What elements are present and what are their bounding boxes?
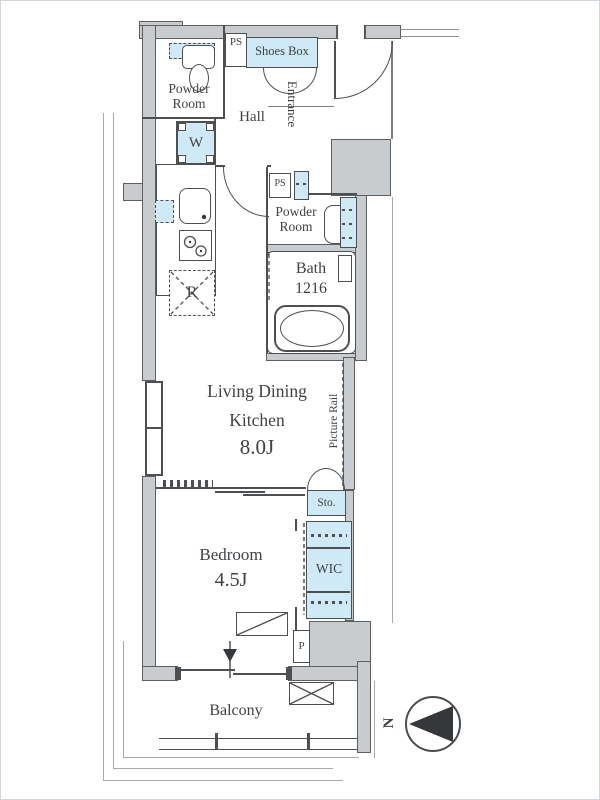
balcony-railing	[159, 738, 357, 750]
powder-room-top-label: Powder Room	[153, 81, 225, 111]
linen-cabinet-dashes	[342, 223, 355, 225]
wall-balcony-right	[357, 661, 371, 753]
wic-label: WIC	[306, 561, 352, 576]
compass-circle	[405, 696, 461, 752]
wall-left-lower	[142, 476, 156, 668]
ldk-window-tick	[145, 427, 163, 429]
entrance-door-opening	[337, 25, 365, 39]
partition-wall	[156, 487, 306, 489]
entrance-step-line	[268, 106, 334, 107]
wic-hanger-dashes	[311, 534, 347, 537]
wic-divider	[307, 591, 350, 593]
kitchen-counter-blue	[155, 200, 174, 223]
storage-label: Sto.	[307, 490, 346, 516]
wall-powder2-top	[307, 193, 357, 195]
outline-bottom-3	[123, 757, 359, 758]
ps-mid-label: PS	[269, 178, 291, 189]
ac-unit-space	[289, 682, 334, 705]
railing-post	[307, 733, 310, 750]
wall-entrance-pillar	[331, 139, 391, 196]
partition-sliding-door-b	[243, 494, 305, 496]
wall-powder1-bottom	[142, 117, 225, 119]
balcony-label: Balcony	[191, 702, 281, 720]
wall-left-upper	[142, 25, 156, 381]
picture-rail-label: Picture Rail	[328, 381, 342, 461]
floor-plan: Powder Room PS Shoes Box Hall Entrance W…	[0, 0, 600, 800]
partition-sliding-door-a	[215, 491, 265, 493]
balcony-sliding-window-b	[233, 673, 288, 675]
outline-left-3	[123, 641, 124, 758]
outline-balcony-right	[374, 681, 375, 758]
stove-icon	[179, 230, 212, 261]
linen-cabinet-dashes	[342, 237, 355, 239]
bath-label: Bath 1216	[271, 259, 351, 299]
outline-right	[392, 197, 393, 623]
counter-desk	[236, 612, 288, 636]
bedroom-label: Bedroom 4.5J	[171, 545, 291, 591]
entrance-door-swing-arc	[335, 41, 393, 99]
ps-top-label: PS	[225, 36, 247, 48]
water-heater-detail	[296, 183, 307, 185]
fridge-label: R	[169, 270, 215, 316]
shoes-box-label: Shoes Box	[246, 44, 318, 58]
bedroom-right-wall-stub-top	[295, 519, 297, 531]
outline-left-1	[103, 113, 104, 781]
compass-north-label: N	[381, 713, 397, 733]
storage-door-left	[307, 468, 326, 490]
hall-label: Hall	[227, 109, 277, 126]
water-heater-icon	[294, 171, 309, 200]
washer-label: W	[176, 121, 216, 165]
bathtub-inner-icon	[280, 310, 344, 347]
wic-divider	[307, 547, 350, 549]
entrance-label: Entrance	[283, 74, 299, 134]
kitchen-sink-icon	[179, 188, 211, 224]
wall-left-stub	[123, 183, 143, 201]
linen-cabinet-dashes	[342, 209, 355, 211]
pipe-space-label: P	[293, 630, 310, 663]
railing-post	[215, 733, 218, 750]
wall-bottom-left	[142, 666, 178, 681]
balcony-sliding-window-a	[181, 669, 235, 671]
outline-left-2	[113, 113, 114, 769]
outline-bottom-2	[113, 768, 333, 769]
powder-room-mid-label: Powder Room	[260, 204, 332, 234]
ldk-window-tick	[145, 381, 163, 383]
window-direction-marker	[223, 649, 237, 662]
entrance-porch-edge	[391, 41, 393, 139]
wall-top-right	[365, 25, 401, 39]
partition-teeth	[163, 480, 213, 487]
ldk-window-tick	[145, 474, 163, 476]
corridor-edge-line	[401, 29, 459, 37]
ldk-label: Living Dining Kitchen 8.0J	[167, 382, 347, 460]
wic-hanger-dashes	[311, 601, 347, 604]
outline-bottom-1	[103, 780, 343, 781]
